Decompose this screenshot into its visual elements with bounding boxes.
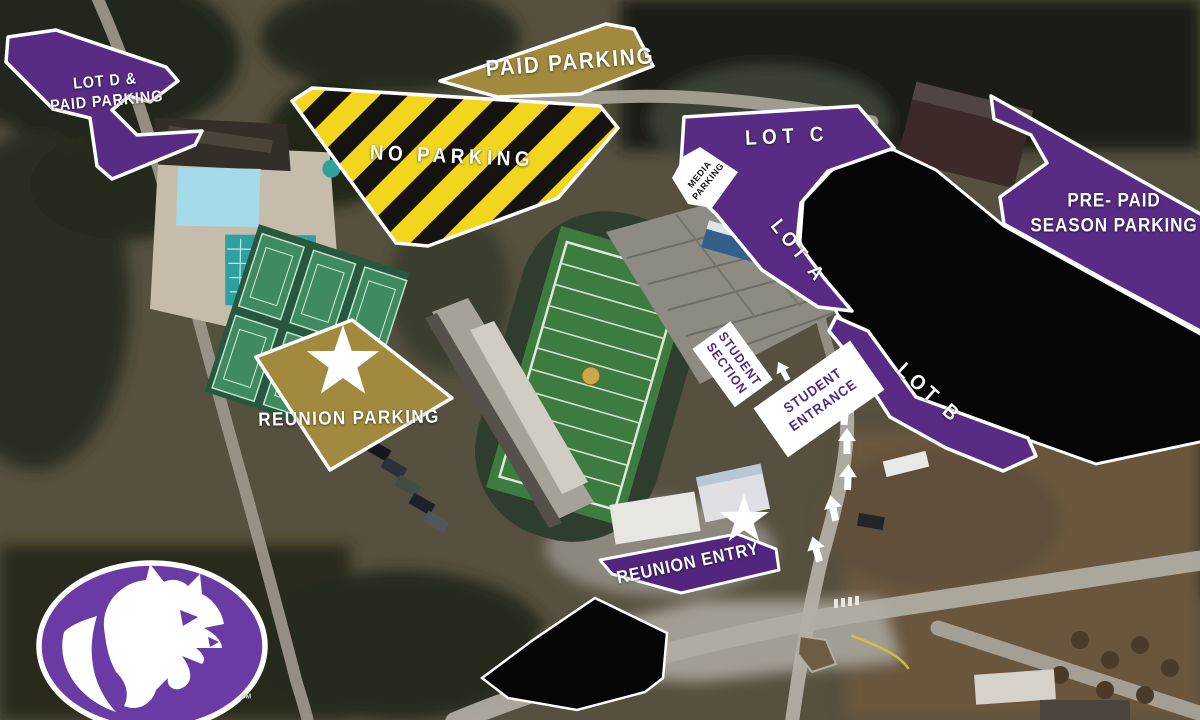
label-pre-paid-line1: PRE- PAID (1030, 189, 1197, 214)
lions-logo (39, 563, 265, 720)
stadium-parking-map: LOT D & PAID PARKING PAID PARKING NO PAR… (0, 0, 1200, 720)
zone-reunion-parking (256, 320, 452, 470)
label-pre-paid-season: PRE- PAID SEASON PARKING (1030, 189, 1197, 238)
logo-trademark: SM (241, 694, 252, 703)
zones-overlay (0, 0, 1200, 720)
label-lot-c: LOT C (745, 122, 830, 153)
reunion-entry-star-icon (719, 494, 768, 541)
label-pre-paid-line2: SEASON PARKING (1030, 214, 1197, 239)
zone-blackout-south (482, 598, 667, 710)
label-reunion-parking: REUNION PARKING (258, 406, 440, 433)
